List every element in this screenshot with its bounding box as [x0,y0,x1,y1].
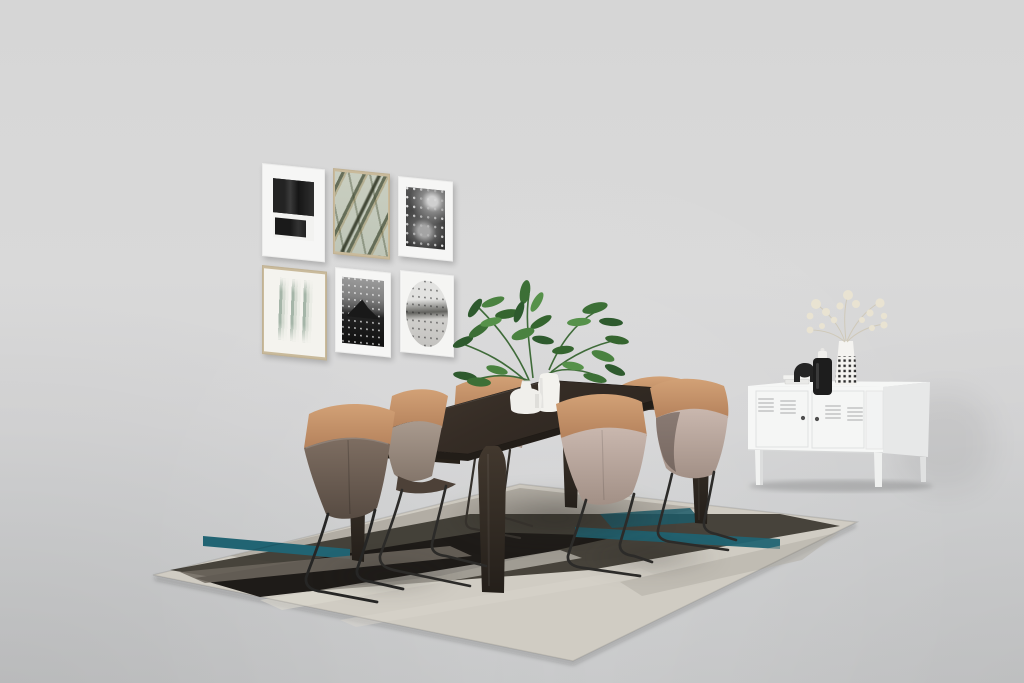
art-palm-frond [335,171,387,257]
mountain-silhouette [342,293,385,320]
cabinet-knob-right [815,417,819,421]
black-canister [813,348,832,395]
picture-frame-bottom-center [335,267,391,358]
watercolor-streaks [277,278,312,344]
dried-flowers [807,290,888,342]
plant-leaves [451,279,629,387]
chair-body [304,438,390,519]
chair-wire-legs [306,510,403,602]
picture-frame-top-center [333,168,390,260]
picture-frame-top-right [398,176,453,262]
chair-near-left [293,396,413,614]
art-block-large [273,178,313,216]
art-mountain-lake [342,276,385,347]
chair-wire-legs [658,472,736,550]
dotted-vase [835,341,857,385]
art-abstract-blocks [273,178,313,241]
art-block-small [275,218,306,238]
art-bw-portrait [406,186,446,249]
cabinet-knob-left [801,416,805,420]
cabinet-fixed-panel [866,391,883,449]
dining-room-render [0,0,1024,683]
chair-near-right [542,388,656,584]
sideboard-cabinet [744,286,940,492]
cabinet-decor [783,290,888,395]
picture-frame-bottom-left [262,265,327,361]
vase-bottle [510,381,542,414]
chair-wire-legs [568,494,652,576]
picture-frame-top-left [262,163,325,262]
art-green-watercolor [264,268,325,358]
oval-landscape [406,278,448,349]
